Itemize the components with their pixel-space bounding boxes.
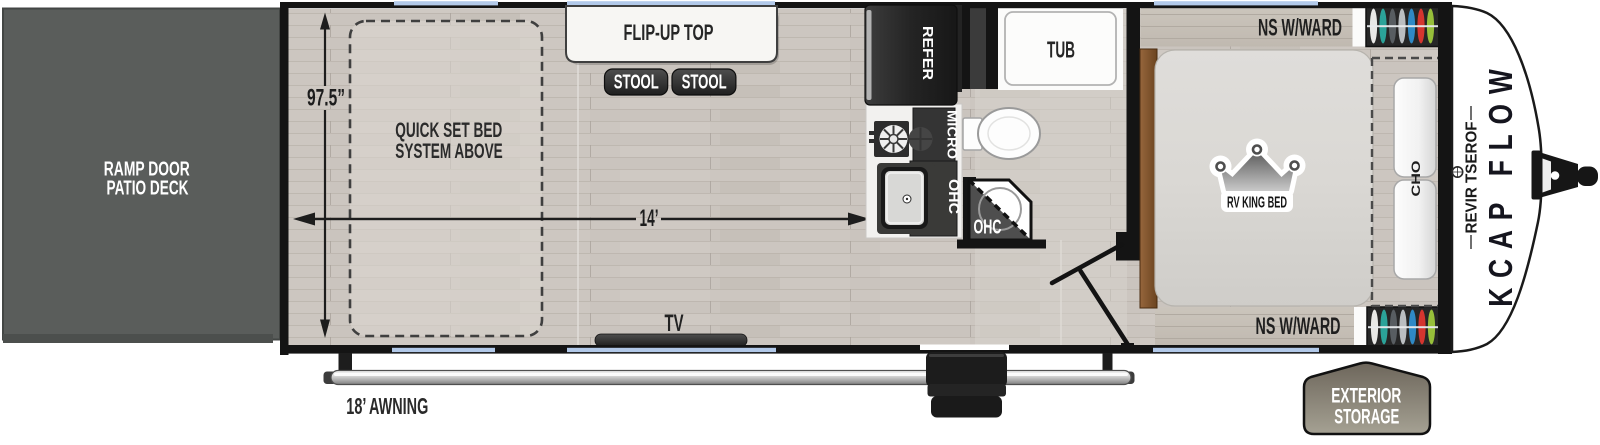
svg-text:97.5”: 97.5” xyxy=(307,85,345,112)
svg-text:NS W/WARD: NS W/WARD xyxy=(1258,15,1342,42)
svg-text:PATIO DECK: PATIO DECK xyxy=(107,178,189,200)
svg-text:REVIR TSEROF: REVIR TSEROF xyxy=(1464,121,1481,233)
svg-text:SYSTEM ABOVE: SYSTEM ABOVE xyxy=(395,140,503,163)
svg-text:KCAP FLOW: KCAP FLOW xyxy=(1483,68,1519,306)
svg-text:STORAGE: STORAGE xyxy=(1334,405,1399,429)
svg-text:MICRO: MICRO xyxy=(945,110,961,159)
svg-text:RV KING BED: RV KING BED xyxy=(1227,195,1287,212)
svg-text:FLIP-UP TOP: FLIP-UP TOP xyxy=(624,20,714,45)
svg-text:18’ AWNING: 18’ AWNING xyxy=(346,393,428,419)
svg-text:14’: 14’ xyxy=(640,205,659,232)
svg-text:TV: TV xyxy=(665,310,684,337)
svg-text:STOOL: STOOL xyxy=(682,72,727,94)
svg-text:TUB: TUB xyxy=(1047,37,1075,63)
svg-text:QUICK SET BED: QUICK SET BED xyxy=(395,119,502,142)
svg-text:STOOL: STOOL xyxy=(614,72,659,94)
svg-text:NS W/WARD: NS W/WARD xyxy=(1256,313,1341,340)
svg-text:REFER: REFER xyxy=(919,26,936,80)
svg-text:CHO: CHO xyxy=(1409,161,1423,197)
svg-text:OHC: OHC xyxy=(945,179,962,214)
svg-text:OHC: OHC xyxy=(974,217,1002,239)
